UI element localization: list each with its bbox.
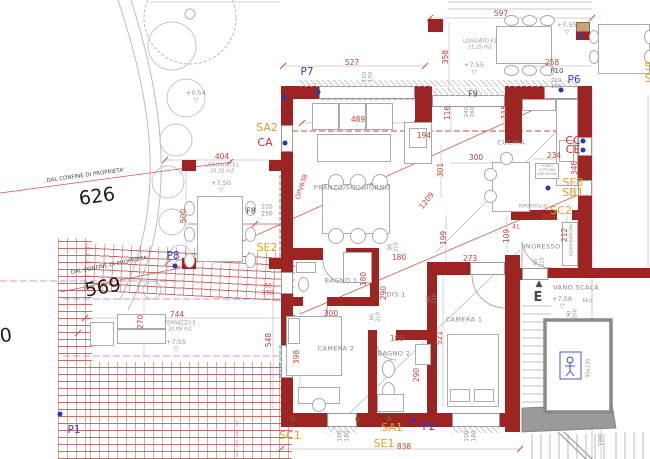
furniture-53	[474, 389, 494, 402]
point-marker-12	[387, 417, 392, 422]
wall-segment-6	[505, 99, 522, 143]
wall-segment-4	[578, 86, 592, 99]
window-opening-9	[470, 262, 505, 275]
furniture-36	[492, 162, 530, 212]
furniture-18	[644, 50, 650, 64]
furniture-31	[372, 228, 388, 244]
roof-tiles-lower-patch	[90, 362, 292, 459]
wall-segment-30	[281, 413, 327, 427]
furniture-10	[540, 15, 555, 26]
furniture-20	[338, 103, 340, 130]
furniture-40	[343, 252, 372, 283]
furniture-39	[500, 152, 513, 165]
furniture-42	[298, 277, 309, 292]
furniture-22	[317, 134, 391, 162]
window-opening-8	[522, 268, 548, 280]
furniture-24	[409, 128, 427, 148]
sill-hatch-3	[452, 427, 500, 433]
furniture-6	[245, 253, 256, 268]
point-marker-0	[282, 95, 287, 100]
sill-hatch-2	[327, 427, 357, 433]
furniture-38	[484, 190, 497, 203]
point-marker-3	[579, 34, 584, 39]
furniture-16	[589, 50, 599, 64]
furniture-37	[484, 168, 497, 181]
wall-segment-11	[281, 378, 293, 415]
wall-segment-0	[281, 86, 319, 99]
point-marker-8	[58, 412, 63, 417]
furniture-2	[184, 227, 195, 242]
point-marker-4	[581, 139, 586, 144]
furniture-17	[644, 30, 650, 44]
wall-segment-32	[500, 413, 520, 427]
furniture-54	[562, 222, 578, 266]
point-marker-2	[173, 264, 178, 269]
wall-segment-33	[182, 160, 196, 171]
wall-segment-29	[572, 210, 578, 220]
furniture-28	[372, 174, 388, 190]
window-opening-6	[281, 272, 293, 294]
sill-hatch-1	[432, 88, 505, 96]
wall-segment-31	[357, 413, 452, 427]
furniture-25	[322, 184, 390, 234]
furniture-41	[296, 262, 316, 273]
elevator-shaft	[545, 320, 611, 412]
furniture-4	[245, 201, 256, 216]
wall-segment-12	[578, 99, 592, 137]
furniture-14	[598, 24, 650, 74]
furniture-29	[328, 228, 344, 244]
window-opening-11	[578, 180, 592, 196]
furniture-11	[504, 65, 519, 76]
furniture-9	[522, 15, 537, 26]
furniture-21	[365, 103, 367, 130]
wall-segment-2	[505, 86, 522, 99]
furniture-35	[535, 163, 559, 179]
wall-segment-23	[327, 297, 370, 306]
wall-segment-18	[505, 255, 520, 432]
column-tan	[576, 22, 590, 32]
wall-segment-7	[281, 99, 293, 125]
wall-segment-36	[269, 258, 283, 269]
furniture-47	[415, 344, 431, 365]
floor-plan-canvas: 5975274894042582343001947442732034183818…	[0, 0, 650, 459]
wall-segment-14	[578, 196, 592, 268]
window-opening-3	[327, 413, 357, 427]
point-marker-11	[291, 417, 296, 422]
furniture-34	[522, 99, 556, 111]
wall-segment-16	[548, 268, 650, 278]
furniture-30	[350, 228, 366, 244]
furniture-27	[350, 174, 366, 190]
furniture-7	[496, 26, 552, 64]
point-marker-1	[283, 141, 288, 146]
wall-segment-24	[368, 330, 377, 415]
furniture-19	[312, 103, 393, 130]
furniture-3	[184, 253, 195, 268]
wall-segment-19	[293, 248, 323, 260]
furniture-55	[90, 322, 114, 346]
wall-segment-13	[578, 156, 592, 180]
furniture-57	[117, 328, 166, 330]
furniture-46	[312, 398, 326, 412]
sill-hatch-0	[300, 80, 578, 87]
furniture-0	[197, 196, 243, 262]
wall-segment-3	[522, 86, 544, 99]
furniture-8	[504, 15, 519, 26]
furniture-1	[184, 201, 195, 216]
window-opening-5	[281, 125, 293, 152]
furniture-50	[377, 394, 404, 412]
furniture-12	[522, 65, 537, 76]
furniture-48	[382, 360, 395, 378]
window-opening-0	[319, 86, 415, 99]
point-marker-10	[316, 90, 321, 95]
furniture-26	[328, 174, 344, 190]
point-marker-7	[411, 418, 416, 423]
wall-segment-22	[293, 297, 303, 306]
wall-segment-37	[428, 19, 443, 32]
window-opening-4	[452, 413, 500, 427]
wall-segment-34	[269, 160, 283, 171]
furniture-44	[288, 318, 300, 344]
furniture-5	[245, 227, 256, 242]
wall-segment-1	[415, 86, 432, 99]
furniture-52	[450, 389, 470, 402]
window-opening-1	[432, 95, 505, 107]
furniture-15	[589, 30, 599, 44]
furniture-13	[540, 65, 555, 76]
point-marker-9	[559, 88, 564, 93]
point-marker-13	[356, 417, 361, 422]
point-marker-6	[546, 186, 551, 191]
point-marker-5	[581, 148, 586, 153]
furniture-33	[559, 140, 574, 162]
wall-segment-26	[427, 262, 437, 422]
